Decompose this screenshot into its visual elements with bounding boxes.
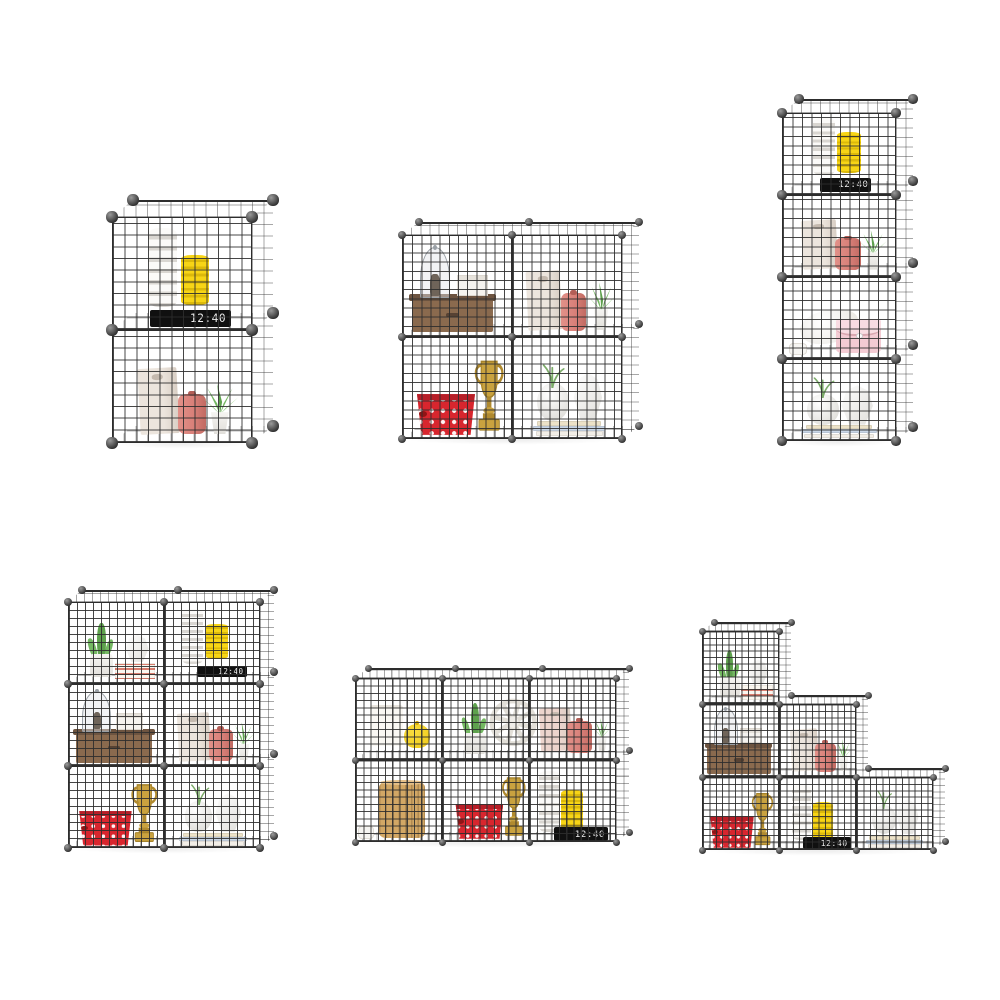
item-spiral	[539, 771, 560, 833]
book	[537, 421, 601, 426]
white-box	[457, 275, 488, 296]
connector-ball	[106, 437, 117, 448]
item-barrel	[379, 782, 424, 838]
item-whitebox	[740, 728, 762, 743]
barrel-top	[380, 780, 423, 786]
connector-ball	[106, 324, 117, 335]
item-gold-trophy	[749, 791, 776, 847]
book	[182, 841, 244, 845]
item-vase_geo	[214, 793, 242, 832]
book	[533, 426, 606, 431]
cube-cell	[779, 704, 856, 777]
connector-ball	[908, 340, 917, 349]
connector-ball	[439, 757, 446, 764]
item-woodbox	[707, 745, 770, 774]
spiral-candle-yellow	[181, 255, 209, 305]
spiral-candle-white	[148, 228, 177, 307]
cloche-figure	[722, 728, 729, 743]
connector-ball	[439, 839, 446, 846]
connector-ball	[777, 354, 786, 363]
glass-cloche	[420, 247, 451, 298]
connector-ball	[635, 422, 644, 431]
item-basket	[454, 804, 504, 838]
connector-ball	[699, 701, 706, 708]
connector-ball	[776, 774, 783, 781]
connector-ball	[246, 437, 257, 448]
item-vase_round	[537, 383, 569, 421]
item-aloe-plant	[591, 717, 613, 751]
yellow-jar	[404, 724, 430, 748]
connector-ball	[699, 847, 706, 854]
product-collage: 12:4012:4012:4012:4012:40	[0, 0, 1000, 1000]
item-plant-sprig	[538, 364, 567, 388]
connector-ball	[106, 211, 117, 222]
item-book-stack	[801, 425, 876, 438]
basket-rim	[454, 804, 504, 809]
item-spiral	[181, 255, 209, 305]
plant-pot	[593, 309, 609, 330]
glass-cloche	[82, 691, 111, 732]
coral-canister	[567, 721, 591, 753]
basket-knob	[712, 830, 718, 834]
spiral-candle-yellow	[813, 802, 833, 840]
connector-ball	[891, 354, 900, 363]
storage-unit-three-by-two: 12:40	[355, 678, 616, 842]
item-book-stack	[866, 835, 923, 847]
item-aloe-plant	[857, 229, 889, 270]
connector-ball	[853, 774, 860, 781]
item-whitebox	[457, 275, 488, 296]
spiral-candle-white	[813, 118, 835, 175]
basket-rim	[415, 394, 477, 400]
bag-handle-hole	[550, 712, 560, 716]
item-bag	[802, 220, 837, 269]
item-vase_geo	[573, 373, 604, 421]
item-clock: 12:40	[554, 827, 608, 841]
connector-ball	[270, 586, 278, 594]
item-canister	[561, 293, 586, 331]
connector-ball	[788, 692, 795, 699]
cube-cell	[112, 330, 252, 443]
plant-pot	[839, 757, 849, 771]
clock-display: 12:40	[190, 313, 226, 324]
item-cloche	[82, 691, 111, 732]
connector-ball	[777, 190, 786, 199]
connector-ball	[635, 218, 644, 227]
plant-pot	[866, 252, 881, 269]
item-cloche	[420, 247, 451, 298]
connector-ball	[930, 847, 937, 854]
book	[869, 836, 919, 840]
connector-ball	[160, 762, 168, 770]
digital-clock: 12:40	[197, 666, 247, 677]
canister-cap	[188, 391, 196, 397]
clock-display: 12:40	[838, 180, 868, 189]
item-gold-trophy	[471, 358, 507, 433]
cube-cell: 12:40	[112, 217, 252, 330]
cube-cell	[856, 777, 933, 850]
spiral-candle-white	[182, 609, 203, 665]
item-canister	[567, 721, 591, 753]
basket-rim	[78, 811, 134, 816]
item-jaryellow	[404, 721, 430, 748]
book	[804, 434, 873, 438]
connector-ball	[127, 194, 138, 205]
bag-handle-hole	[813, 225, 824, 230]
cloche-knob	[724, 707, 727, 711]
canister-cap	[217, 726, 224, 730]
wooden-barrel	[379, 782, 424, 838]
cube-cell	[164, 684, 260, 766]
connector-ball	[256, 598, 264, 606]
connector-ball	[64, 598, 72, 606]
plant-pot	[210, 412, 230, 434]
cube-cell	[442, 678, 529, 760]
connector-ball	[174, 586, 182, 594]
connector-ball	[452, 665, 459, 672]
item-vase_geo	[125, 635, 150, 662]
connector-ball	[626, 665, 633, 672]
cube-cell	[402, 235, 512, 337]
item-basket	[78, 811, 134, 845]
wooden-box-slot	[108, 746, 120, 750]
clock-display: 12:40	[575, 830, 605, 839]
polka-dot-basket	[415, 394, 477, 435]
connector-ball	[891, 436, 900, 445]
spiral-candle-yellow	[561, 790, 583, 833]
white-box-lid	[117, 714, 143, 718]
connector-ball	[891, 190, 900, 199]
connector-ball	[352, 757, 359, 764]
item-bag	[527, 271, 561, 330]
coral-canister	[561, 293, 586, 331]
item-plant-sprig	[187, 784, 211, 805]
connector-ball	[160, 680, 168, 688]
purse-clasp	[856, 333, 863, 339]
connector-ball	[777, 436, 786, 445]
connector-ball	[526, 675, 533, 682]
wooden-box-slot	[734, 758, 744, 762]
connector-ball	[270, 750, 278, 758]
cube-cell	[512, 337, 622, 439]
item-vase_geo	[748, 659, 769, 684]
connector-ball	[160, 598, 168, 606]
white-box	[740, 728, 762, 743]
cube-cell	[68, 766, 164, 848]
storage-unit-two-by-two	[402, 235, 622, 439]
connector-ball	[352, 839, 359, 846]
storage-unit-two-by-three: 12:40	[68, 602, 260, 848]
cube-cell	[402, 337, 512, 439]
spiral-candle-yellow	[837, 132, 861, 173]
connector-ball	[865, 692, 872, 699]
bag-handle-hole	[151, 374, 163, 380]
basket-knob	[457, 819, 464, 824]
cube-cell: 12:40	[164, 602, 260, 684]
digital-clock: 12:40	[820, 178, 871, 192]
item-vase_round	[872, 805, 896, 833]
cloche-knob	[433, 245, 437, 250]
cactus-pot	[90, 654, 113, 676]
connector-ball	[270, 832, 278, 840]
cube-cell	[782, 359, 896, 441]
coral-canister	[209, 729, 233, 761]
connector-ball	[256, 762, 264, 770]
canister-cap	[822, 740, 828, 744]
item-stripedbooks	[115, 663, 155, 679]
connector-ball	[267, 420, 278, 431]
cube-cell	[442, 760, 529, 842]
item-clock: 12:40	[820, 178, 871, 192]
item-aloe-plant	[585, 281, 618, 330]
connector-ball	[865, 765, 872, 772]
book	[801, 429, 876, 433]
item-bag	[178, 713, 210, 761]
basket-knob	[419, 411, 427, 417]
geometric-vase	[840, 385, 874, 424]
wooden-box-slot	[446, 313, 459, 317]
item-vase_geo	[896, 799, 920, 834]
item-woodbox	[412, 297, 493, 332]
connector-ball	[699, 628, 706, 635]
connector-ball	[930, 774, 937, 781]
item-spiral	[813, 802, 833, 840]
connector-ball	[160, 844, 168, 852]
spiral-candle-white	[792, 785, 811, 840]
connector-ball	[942, 838, 949, 845]
item-plant-sprig	[874, 790, 893, 809]
cube-cell	[355, 760, 442, 842]
mesh-side-panel	[616, 750, 629, 842]
item-basket	[415, 394, 477, 435]
connector-ball	[267, 194, 278, 205]
item-spiral	[148, 228, 177, 307]
striped-books	[115, 663, 155, 679]
pillar-candle	[370, 705, 403, 746]
connector-ball	[626, 747, 633, 754]
connector-ball	[78, 586, 86, 594]
item-vase_round	[807, 394, 839, 424]
connector-ball	[635, 320, 644, 329]
connector-ball	[267, 307, 278, 318]
gift-bag	[801, 220, 839, 271]
item-candle	[370, 705, 403, 746]
cube-cell	[529, 678, 616, 760]
connector-ball	[908, 94, 917, 103]
bag-handle-hole	[538, 276, 548, 282]
connector-ball	[908, 258, 917, 267]
item-aloe-plant	[230, 721, 257, 760]
gift-bag	[177, 712, 211, 761]
connector-ball	[891, 108, 900, 117]
cube-cell	[702, 777, 779, 850]
connector-ball	[613, 675, 620, 682]
plant-pot	[597, 737, 607, 751]
canister-cap	[844, 236, 851, 240]
item-vase_geo	[840, 385, 874, 424]
item-spiral	[182, 609, 203, 665]
connector-ball	[613, 839, 620, 846]
item-gold-trophy	[128, 782, 161, 844]
connector-ball	[853, 847, 860, 854]
polka-dot-basket	[78, 811, 134, 845]
item-book-stack	[533, 421, 606, 436]
item-spiral	[813, 118, 835, 175]
basket-knob	[81, 826, 88, 831]
connector-ball	[908, 422, 917, 431]
connector-ball	[776, 701, 783, 708]
striped-books	[741, 685, 773, 700]
digital-clock: 12:40	[554, 827, 608, 841]
connector-ball	[711, 619, 718, 626]
mesh-side-panel	[616, 668, 629, 760]
item-clock: 12:40	[150, 310, 231, 327]
connector-ball	[246, 324, 257, 335]
white-box	[116, 713, 144, 730]
small-cup	[789, 343, 807, 354]
cube-cell	[68, 684, 164, 766]
connector-ball	[439, 675, 446, 682]
connector-ball	[270, 668, 278, 676]
item-gold-trophy	[499, 775, 529, 838]
connector-ball	[539, 665, 546, 672]
geometric-vase	[573, 373, 604, 421]
item-book-stack	[179, 832, 246, 845]
clock-display: 12:40	[821, 839, 848, 847]
item-spiral	[792, 785, 811, 840]
polka-dot-basket	[454, 804, 504, 838]
item-spiral	[561, 790, 583, 833]
small-cup	[358, 826, 374, 838]
jar-knob	[415, 721, 419, 725]
cloche-knob	[95, 689, 99, 693]
connector-ball	[794, 94, 803, 103]
spiral-candle-white	[539, 771, 560, 833]
item-spiral	[837, 132, 861, 173]
geometric-vase	[214, 793, 242, 832]
round-vase	[537, 383, 569, 421]
digital-clock: 12:40	[803, 837, 851, 849]
cloche-figure	[93, 712, 102, 729]
white-box-lid	[458, 276, 487, 281]
item-spiral	[206, 624, 228, 659]
book	[866, 840, 923, 844]
item-stripedbooks	[741, 685, 773, 700]
connector-ball	[891, 272, 900, 281]
connector-ball	[526, 757, 533, 764]
book	[179, 837, 246, 841]
cube-cell	[702, 631, 779, 704]
plant-pot	[237, 744, 250, 761]
pink-purse	[836, 319, 882, 353]
digital-clock: 12:40	[150, 310, 231, 327]
connector-ball	[526, 839, 533, 846]
connector-ball	[352, 675, 359, 682]
connector-ball	[246, 211, 257, 222]
connector-ball	[256, 680, 264, 688]
item-aloe-plant	[199, 382, 241, 434]
connector-ball	[776, 847, 783, 854]
cube-cell	[355, 678, 442, 760]
storage-unit-two-cube-tower: 12:40	[112, 217, 252, 443]
book	[183, 833, 242, 837]
bag-handle-hole	[799, 732, 807, 736]
canister-cap	[570, 290, 577, 295]
cube-cell	[164, 766, 260, 848]
connector-ball	[699, 774, 706, 781]
cactus-pot	[720, 677, 740, 697]
connector-ball	[64, 762, 72, 770]
cloche-figure	[430, 274, 439, 296]
connector-ball	[776, 628, 783, 635]
item-aloe-plant	[833, 738, 854, 772]
cube-cell	[512, 235, 622, 337]
gift-bag	[525, 270, 562, 331]
connector-ball	[613, 757, 620, 764]
round-vase	[185, 801, 213, 831]
bag-handle-hole	[188, 717, 198, 722]
item-vase_round	[185, 801, 213, 831]
book	[536, 431, 603, 436]
item-clock: 12:40	[803, 837, 851, 849]
storage-unit-staircase: 12:40	[702, 631, 933, 850]
book	[868, 844, 920, 848]
connector-ball	[777, 272, 786, 281]
storage-unit-four-cube-tower: 12:40	[782, 113, 896, 441]
cube-cell: 12:40	[529, 760, 616, 842]
connector-ball	[64, 680, 72, 688]
connector-ball	[788, 619, 795, 626]
cube-cell	[702, 704, 779, 777]
cube-cell	[782, 195, 896, 277]
connector-ball	[626, 829, 633, 836]
connector-ball	[942, 765, 949, 772]
spiral-candle-yellow	[206, 624, 228, 659]
item-purse	[836, 319, 882, 353]
cube-cell: 12:40	[779, 777, 856, 850]
geometric-vase	[125, 635, 150, 662]
geometric-vase	[748, 659, 769, 684]
item-canister	[209, 729, 233, 761]
cube-cell: 12:40	[782, 113, 896, 195]
item-woodbox	[76, 732, 153, 763]
book	[806, 425, 872, 429]
connector-ball	[64, 844, 72, 852]
round-vase	[807, 394, 839, 424]
glass-cloche	[714, 708, 738, 745]
item-whitebox	[116, 713, 144, 730]
cube-cell	[782, 277, 896, 359]
round-vase	[872, 805, 896, 833]
item-cup	[789, 343, 807, 354]
cube-cell	[68, 602, 164, 684]
item-cloche	[714, 708, 738, 745]
connector-ball	[365, 665, 372, 672]
gift-bag	[137, 367, 180, 434]
canister-cap	[576, 718, 583, 722]
geometric-vase	[896, 799, 920, 834]
connector-ball	[908, 176, 917, 185]
connector-ball	[256, 844, 264, 852]
item-clock: 12:40	[197, 666, 247, 677]
white-box-lid	[741, 729, 761, 732]
clock-display: 12:40	[218, 668, 243, 676]
connector-ball	[853, 701, 860, 708]
connector-ball	[777, 108, 786, 117]
item-plant-sprig	[809, 377, 836, 398]
item-bag	[139, 368, 178, 434]
item-cup	[358, 826, 374, 838]
